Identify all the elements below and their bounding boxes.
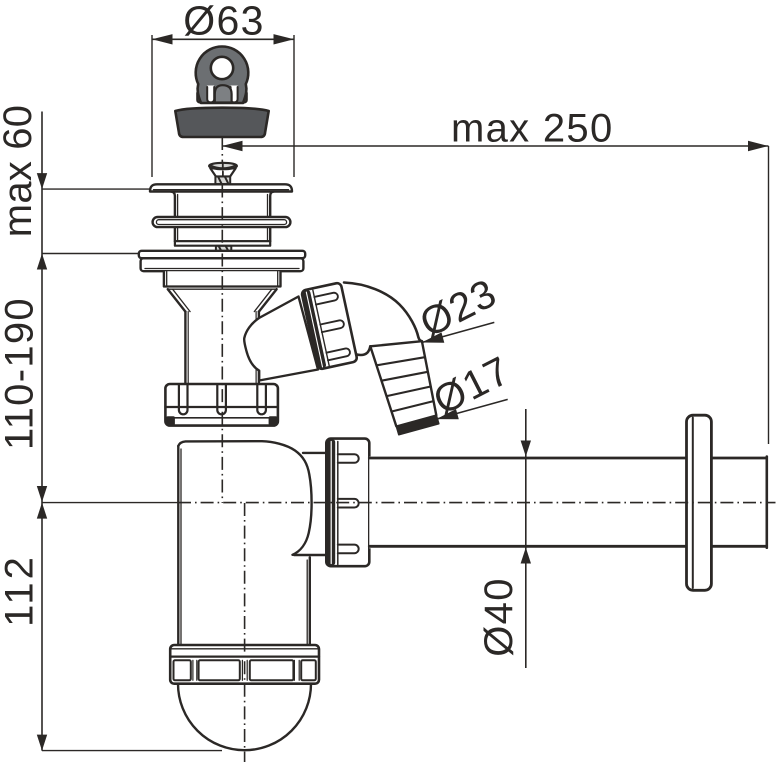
- svg-text:max 60: max 60: [0, 105, 40, 237]
- svg-text:110-190: 110-190: [0, 297, 42, 450]
- svg-text:Ø63: Ø63: [183, 0, 264, 44]
- svg-text:Ø40: Ø40: [477, 577, 521, 657]
- svg-text:max 250: max 250: [451, 107, 614, 151]
- svg-text:112: 112: [0, 554, 42, 627]
